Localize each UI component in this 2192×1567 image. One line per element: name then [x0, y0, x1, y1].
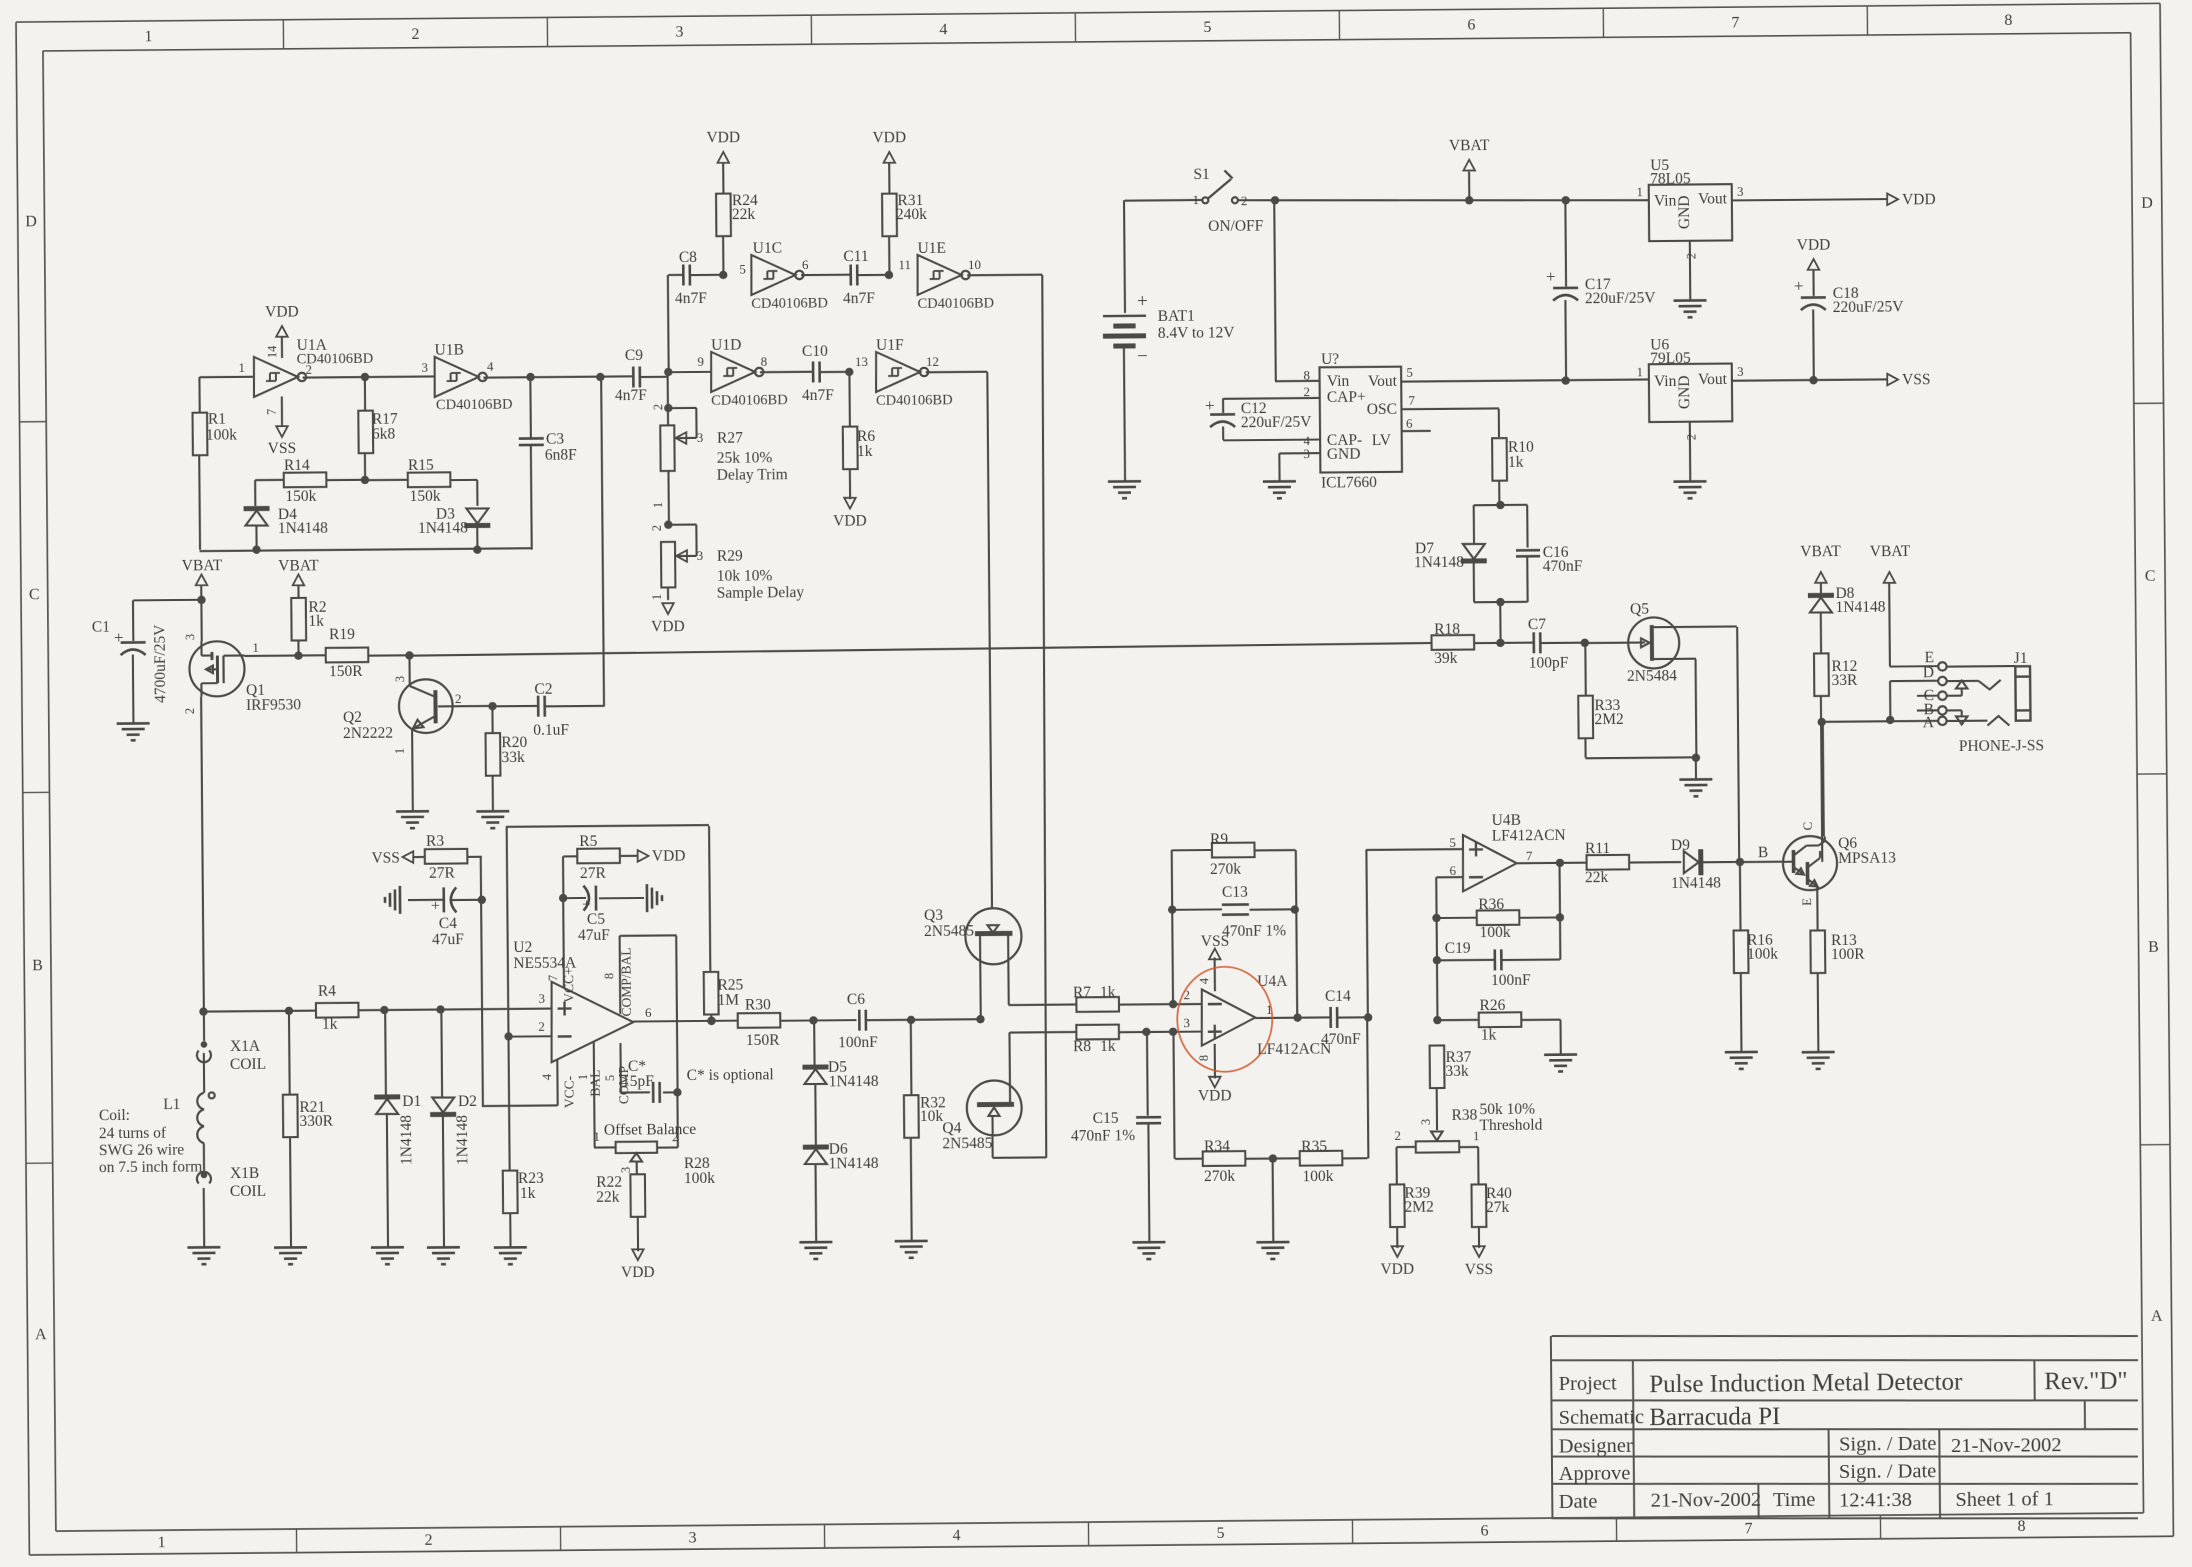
svg-text:U1F: U1F	[876, 337, 904, 354]
svg-text:1N4148: 1N4148	[829, 1073, 879, 1090]
svg-text:240k: 240k	[896, 206, 927, 223]
svg-text:4: 4	[939, 21, 947, 38]
svg-text:Offset Balance: Offset Balance	[604, 1121, 697, 1139]
svg-text:2: 2	[651, 404, 665, 410]
svg-text:J1: J1	[2014, 650, 2028, 667]
svg-text:U1B: U1B	[435, 342, 464, 359]
svg-text:VDD: VDD	[1797, 236, 1831, 253]
svg-text:8: 8	[1197, 1055, 1211, 1061]
svg-text:C5: C5	[587, 911, 605, 928]
svg-text:4700uF/25V: 4700uF/25V	[152, 624, 170, 703]
svg-text:12:41:38: 12:41:38	[1839, 1489, 1912, 1512]
svg-text:3: 3	[688, 1530, 696, 1547]
svg-text:VBAT: VBAT	[278, 557, 319, 574]
svg-text:MPSA13: MPSA13	[1838, 850, 1896, 868]
svg-text:VSS: VSS	[1465, 1261, 1494, 1278]
svg-text:6: 6	[1449, 863, 1456, 878]
svg-text:U1C: U1C	[753, 240, 782, 257]
svg-text:E: E	[1799, 898, 1814, 906]
svg-text:100pF: 100pF	[1529, 654, 1569, 671]
svg-text:+: +	[114, 628, 124, 647]
svg-text:Vin: Vin	[1654, 192, 1677, 209]
svg-text:10k: 10k	[920, 1108, 944, 1125]
svg-text:3: 3	[183, 634, 197, 640]
svg-text:7: 7	[1744, 1520, 1752, 1537]
svg-text:150R: 150R	[746, 1032, 780, 1049]
svg-text:4n7F: 4n7F	[802, 387, 834, 404]
svg-text:470nF 1%: 470nF 1%	[1222, 922, 1286, 940]
svg-text:1k: 1k	[308, 613, 324, 630]
svg-text:Sign. / Date: Sign. / Date	[1839, 1460, 1937, 1483]
svg-text:8: 8	[2017, 1518, 2025, 1535]
svg-text:R30: R30	[745, 996, 771, 1013]
svg-text:7: 7	[1408, 393, 1415, 408]
svg-text:4: 4	[487, 359, 494, 374]
svg-text:Schematic: Schematic	[1559, 1406, 1645, 1429]
svg-text:Threshold: Threshold	[1479, 1116, 1542, 1134]
svg-text:ICL7660: ICL7660	[1321, 474, 1377, 491]
svg-text:LV: LV	[1372, 432, 1392, 449]
svg-text:R5: R5	[579, 833, 597, 850]
svg-text:C15: C15	[1093, 1110, 1119, 1127]
svg-text:VBAT: VBAT	[1870, 543, 1911, 560]
svg-text:33k: 33k	[1445, 1063, 1469, 1080]
svg-text:39k: 39k	[1434, 650, 1458, 667]
svg-text:Barracuda PI: Barracuda PI	[1649, 1403, 1780, 1431]
svg-text:3: 3	[393, 676, 407, 682]
svg-text:GND: GND	[1676, 195, 1693, 229]
svg-text:1k: 1k	[857, 443, 873, 460]
svg-text:R26: R26	[1479, 997, 1505, 1014]
svg-text:IRF9530: IRF9530	[246, 697, 302, 714]
svg-text:Q5: Q5	[1630, 601, 1649, 618]
svg-text:D9: D9	[1671, 837, 1690, 854]
svg-text:1: 1	[393, 748, 407, 754]
svg-text:27k: 27k	[1486, 1199, 1510, 1216]
svg-text:3: 3	[697, 431, 703, 445]
svg-text:470nF 1%: 470nF 1%	[1071, 1127, 1135, 1145]
svg-text:220uF/25V: 220uF/25V	[1241, 413, 1313, 431]
svg-text:Q2: Q2	[343, 709, 362, 726]
svg-text:VDD: VDD	[872, 129, 906, 146]
svg-text:C1: C1	[92, 619, 110, 636]
svg-text:A: A	[2151, 1308, 2163, 1325]
svg-text:27R: 27R	[580, 865, 607, 882]
svg-text:1: 1	[144, 28, 152, 45]
svg-text:BAT1: BAT1	[1158, 308, 1195, 325]
svg-text:79L05: 79L05	[1650, 350, 1691, 367]
svg-text:1: 1	[238, 360, 245, 375]
svg-text:Q3: Q3	[924, 907, 943, 924]
svg-text:Sample Delay: Sample Delay	[717, 584, 805, 602]
svg-text:1N4148: 1N4148	[829, 1155, 879, 1172]
svg-text:6: 6	[802, 257, 809, 272]
svg-text:VCC+: VCC+	[561, 967, 576, 1003]
svg-text:3: 3	[421, 360, 428, 375]
svg-text:1M: 1M	[717, 992, 739, 1009]
svg-text:R1: R1	[208, 411, 226, 428]
svg-text:VBAT: VBAT	[182, 557, 223, 574]
svg-text:Delay Trim: Delay Trim	[717, 466, 788, 484]
svg-text:11: 11	[898, 257, 911, 272]
svg-text:VBAT: VBAT	[1449, 137, 1490, 154]
svg-text:PHONE-J-SS: PHONE-J-SS	[1959, 737, 2044, 755]
svg-text:U1D: U1D	[711, 337, 741, 354]
svg-text:4: 4	[952, 1527, 960, 1544]
svg-text:X1B: X1B	[230, 1165, 259, 1182]
svg-text:1k: 1k	[520, 1185, 536, 1202]
svg-text:VDD: VDD	[651, 618, 685, 635]
svg-text:33R: 33R	[1831, 672, 1858, 689]
svg-text:24 turns of: 24 turns of	[99, 1124, 167, 1142]
svg-text:1: 1	[1192, 192, 1199, 207]
svg-text:2: 2	[1684, 253, 1698, 259]
svg-text:C19: C19	[1445, 940, 1471, 957]
svg-text:270k: 270k	[1204, 1168, 1235, 1185]
svg-text:R34: R34	[1204, 1138, 1230, 1155]
svg-text:R9: R9	[1210, 831, 1228, 848]
svg-text:8: 8	[2004, 12, 2012, 29]
svg-text:CD40106BD: CD40106BD	[751, 295, 828, 312]
svg-text:3: 3	[1737, 184, 1744, 199]
svg-text:50k 10%: 50k 10%	[1479, 1100, 1535, 1117]
svg-text:3: 3	[538, 991, 545, 1006]
svg-text:2: 2	[672, 1129, 679, 1144]
svg-text:5: 5	[1216, 1525, 1224, 1542]
svg-text:1: 1	[252, 640, 259, 655]
svg-text:14: 14	[265, 345, 279, 358]
svg-text:47uF: 47uF	[578, 927, 610, 944]
svg-text:Sheet 1 of 1: Sheet 1 of 1	[1955, 1488, 2054, 1511]
svg-text:1: 1	[158, 1534, 166, 1551]
svg-text:100k: 100k	[1747, 946, 1778, 963]
svg-text:D: D	[2141, 195, 2153, 212]
svg-text:47uF: 47uF	[432, 931, 464, 948]
svg-text:B: B	[1758, 844, 1768, 861]
svg-text:VSS: VSS	[371, 849, 400, 866]
svg-text:D1: D1	[402, 1093, 421, 1110]
svg-text:4: 4	[540, 1073, 554, 1080]
svg-text:VDD: VDD	[1380, 1261, 1414, 1278]
svg-text:27R: 27R	[429, 865, 456, 882]
svg-text:S1: S1	[1193, 166, 1210, 183]
svg-text:D: D	[25, 213, 37, 230]
svg-text:1N4148: 1N4148	[1671, 875, 1721, 892]
svg-text:VDD: VDD	[621, 1264, 655, 1281]
svg-text:LF412ACN: LF412ACN	[1492, 827, 1566, 845]
svg-text:+: +	[1794, 276, 1804, 295]
svg-text:CD40106BD: CD40106BD	[876, 392, 953, 409]
svg-text:R14: R14	[284, 457, 310, 474]
svg-text:CD40106BD: CD40106BD	[711, 392, 788, 409]
svg-text:VDD: VDD	[1198, 1087, 1232, 1104]
svg-text:100nF: 100nF	[838, 1034, 878, 1051]
svg-text:7: 7	[265, 409, 279, 415]
svg-text:1N4148: 1N4148	[398, 1115, 415, 1165]
svg-text:Time: Time	[1773, 1489, 1816, 1511]
svg-text:4n7F: 4n7F	[615, 387, 647, 404]
svg-text:1N4148: 1N4148	[278, 520, 328, 537]
svg-text:Pulse Induction Metal Detector: Pulse Induction Metal Detector	[1649, 1368, 1963, 1398]
svg-text:B: B	[2148, 939, 2159, 956]
svg-text:D2: D2	[458, 1093, 477, 1110]
svg-text:1N4148: 1N4148	[1414, 554, 1464, 571]
svg-text:R8: R8	[1073, 1038, 1091, 1055]
svg-text:2N2222: 2N2222	[343, 725, 393, 742]
svg-text:2M2: 2M2	[1404, 1199, 1433, 1216]
svg-text:7: 7	[1731, 14, 1739, 31]
svg-text:Project: Project	[1559, 1372, 1618, 1395]
svg-text:C8: C8	[679, 249, 697, 266]
svg-text:X1A: X1A	[230, 1038, 261, 1055]
svg-text:Rev."D": Rev."D"	[2044, 1368, 2128, 1396]
svg-text:R36: R36	[1478, 896, 1504, 913]
svg-text:C3: C3	[546, 431, 564, 448]
svg-text:COIL: COIL	[230, 1056, 266, 1073]
svg-text:4: 4	[1197, 977, 1211, 984]
svg-text:on 7.5 inch form: on 7.5 inch form	[99, 1158, 202, 1176]
svg-text:6: 6	[1480, 1523, 1488, 1540]
svg-text:22k: 22k	[1585, 869, 1609, 886]
svg-text:L1: L1	[163, 1096, 180, 1113]
svg-text:6n8F: 6n8F	[545, 447, 577, 464]
svg-text:3: 3	[1419, 1119, 1433, 1125]
svg-text:3: 3	[1737, 364, 1744, 379]
svg-text:−: −	[1137, 346, 1148, 367]
svg-text:+: +	[1546, 267, 1556, 286]
svg-text:25k 10%: 25k 10%	[717, 450, 773, 467]
svg-text:100k: 100k	[684, 1170, 715, 1187]
svg-text:220uF/25V: 220uF/25V	[1585, 289, 1657, 307]
svg-text:ON/OFF: ON/OFF	[1208, 218, 1264, 235]
svg-text:VSS: VSS	[268, 440, 297, 457]
svg-text:2M2: 2M2	[1594, 711, 1623, 728]
svg-text:R7: R7	[1073, 984, 1091, 1001]
svg-text:150k: 150k	[285, 488, 316, 505]
svg-text:21-Nov-2002: 21-Nov-2002	[1951, 1434, 2062, 1457]
svg-text:R27: R27	[717, 430, 743, 447]
svg-text:R18: R18	[1434, 621, 1460, 638]
svg-text:SWG 26 wire: SWG 26 wire	[99, 1141, 185, 1159]
svg-text:5: 5	[739, 261, 746, 276]
svg-text:C: C	[1800, 822, 1815, 831]
svg-text:1: 1	[650, 594, 664, 600]
svg-text:A: A	[1923, 714, 1935, 731]
svg-text:VDD: VDD	[1902, 191, 1936, 208]
svg-text:D: D	[1923, 664, 1934, 681]
svg-text:220uF/25V: 220uF/25V	[1833, 298, 1905, 316]
svg-text:R4: R4	[318, 983, 336, 1000]
svg-text:7: 7	[546, 975, 560, 981]
svg-text:C* is optional: C* is optional	[687, 1066, 774, 1084]
svg-text:R3: R3	[426, 833, 444, 850]
svg-text:Vin: Vin	[1327, 373, 1350, 390]
svg-text:CD40106BD: CD40106BD	[917, 295, 994, 312]
svg-text:1k: 1k	[322, 1016, 338, 1033]
svg-text:100nF: 100nF	[1491, 972, 1531, 989]
svg-text:U1E: U1E	[917, 240, 946, 257]
svg-text:BAL: BAL	[587, 1070, 602, 1097]
svg-text:VBAT: VBAT	[1800, 543, 1841, 560]
svg-text:33k: 33k	[501, 749, 525, 766]
svg-text:R35: R35	[1301, 1138, 1327, 1155]
svg-text:VDD: VDD	[652, 848, 686, 865]
svg-text:C14: C14	[1325, 988, 1351, 1005]
svg-text:13: 13	[855, 354, 868, 369]
svg-text:4n7F: 4n7F	[675, 290, 707, 307]
svg-text:2: 2	[411, 26, 419, 43]
svg-text:2: 2	[650, 525, 664, 531]
svg-text:1k: 1k	[1481, 1026, 1497, 1043]
svg-text:Sign. / Date: Sign. / Date	[1839, 1433, 1937, 1456]
svg-text:9: 9	[697, 354, 704, 369]
svg-text:Date: Date	[1559, 1491, 1598, 1513]
svg-text:Vout: Vout	[1698, 371, 1728, 388]
svg-text:12: 12	[926, 354, 939, 369]
svg-text:22k: 22k	[596, 1189, 620, 1206]
svg-text:2: 2	[305, 362, 312, 377]
svg-text:C: C	[29, 586, 40, 603]
svg-text:150k: 150k	[409, 488, 440, 505]
svg-text:2: 2	[183, 708, 197, 714]
svg-text:5: 5	[1449, 835, 1456, 850]
svg-text:2N5485: 2N5485	[942, 1135, 992, 1152]
svg-text:C11: C11	[843, 248, 868, 265]
svg-text:3: 3	[1183, 1015, 1190, 1030]
svg-text:B: B	[32, 957, 43, 974]
svg-text:COIL: COIL	[230, 1183, 266, 1200]
svg-text:2: 2	[1684, 434, 1698, 440]
svg-text:C: C	[2145, 568, 2156, 585]
svg-text:C10: C10	[802, 343, 828, 360]
svg-text:C4: C4	[439, 915, 457, 932]
svg-text:5: 5	[603, 1075, 617, 1081]
svg-text:2: 2	[1303, 384, 1310, 399]
svg-text:VCC-: VCC-	[561, 1075, 576, 1108]
svg-text:5: 5	[1203, 19, 1211, 36]
svg-text:VSS: VSS	[1902, 371, 1931, 388]
svg-text:COMP/BAL: COMP/BAL	[618, 947, 634, 1016]
svg-text:22k: 22k	[732, 206, 756, 223]
svg-text:78L05: 78L05	[1650, 170, 1691, 187]
svg-text:1: 1	[651, 502, 665, 508]
svg-text:U2: U2	[513, 939, 532, 956]
svg-text:C9: C9	[625, 347, 643, 364]
svg-text:10: 10	[968, 257, 981, 272]
svg-text:U?: U?	[1321, 351, 1339, 368]
svg-text:1N4148: 1N4148	[418, 520, 468, 537]
svg-text:Vout: Vout	[1368, 373, 1398, 390]
svg-text:R19: R19	[329, 626, 355, 643]
svg-text:8.4V to 12V: 8.4V to 12V	[1158, 324, 1236, 342]
svg-text:1: 1	[1473, 1128, 1480, 1143]
svg-text:4n7F: 4n7F	[843, 290, 875, 307]
svg-text:100k: 100k	[206, 427, 237, 444]
svg-text:+: +	[431, 898, 440, 915]
svg-text:1N4148: 1N4148	[454, 1115, 471, 1165]
svg-text:+: +	[1205, 396, 1215, 415]
svg-text:GND: GND	[1676, 375, 1693, 409]
svg-text:Vout: Vout	[1698, 190, 1728, 207]
svg-text:Vin: Vin	[1654, 373, 1677, 390]
svg-text:VDD: VDD	[706, 129, 740, 146]
svg-text:2: 2	[425, 1532, 433, 1549]
svg-text:8: 8	[602, 973, 616, 979]
svg-text:100R: 100R	[1831, 946, 1865, 963]
svg-text:3: 3	[697, 549, 703, 563]
svg-text:VDD: VDD	[265, 303, 299, 320]
svg-text:6k8: 6k8	[372, 426, 396, 443]
svg-text:CAP+: CAP+	[1327, 389, 1366, 406]
svg-text:3: 3	[675, 24, 683, 41]
svg-text:+: +	[1137, 291, 1148, 312]
svg-text:R29: R29	[717, 548, 743, 565]
svg-text:7: 7	[1526, 848, 1533, 863]
svg-text:R15: R15	[408, 457, 434, 474]
svg-text:2: 2	[1394, 1128, 1401, 1143]
svg-text:GND: GND	[1327, 446, 1361, 463]
svg-text:0.1uF: 0.1uF	[533, 722, 569, 739]
svg-text:1k: 1k	[1100, 984, 1116, 1001]
svg-text:OSC: OSC	[1367, 401, 1397, 418]
svg-text:1: 1	[593, 1129, 600, 1144]
svg-text:470nF: 470nF	[1321, 1031, 1361, 1048]
svg-text:100k: 100k	[1479, 924, 1510, 941]
svg-text:15pF: 15pF	[622, 1073, 654, 1090]
svg-text:VDD: VDD	[833, 512, 867, 529]
svg-text:10k 10%: 10k 10%	[717, 568, 773, 585]
svg-text:2N5485: 2N5485	[924, 923, 974, 940]
svg-text:6: 6	[1406, 416, 1413, 431]
svg-text:1N4148: 1N4148	[1835, 599, 1885, 616]
svg-text:6: 6	[1467, 17, 1475, 34]
svg-text:6: 6	[645, 1005, 652, 1020]
svg-text:3: 3	[619, 1167, 633, 1173]
svg-text:330R: 330R	[299, 1113, 333, 1130]
svg-text:5: 5	[1406, 365, 1413, 380]
svg-text:2: 2	[455, 691, 462, 706]
svg-text:100k: 100k	[1302, 1168, 1333, 1185]
svg-text:1k: 1k	[1508, 454, 1524, 471]
svg-text:Approve: Approve	[1559, 1462, 1631, 1485]
svg-text:270k: 270k	[1210, 861, 1241, 878]
svg-text:C6: C6	[847, 991, 865, 1008]
svg-text:2N5484: 2N5484	[1627, 668, 1677, 685]
svg-text:C2: C2	[534, 681, 552, 698]
svg-text:CD40106BD: CD40106BD	[436, 397, 513, 414]
svg-text:A: A	[35, 1326, 47, 1343]
svg-text:21-Nov-2002: 21-Nov-2002	[1651, 1489, 1762, 1512]
svg-text:1k: 1k	[1100, 1038, 1116, 1055]
svg-text:1: 1	[1636, 184, 1643, 199]
svg-text:C13: C13	[1222, 884, 1248, 901]
svg-text:2: 2	[538, 1019, 545, 1034]
svg-text:8: 8	[761, 354, 768, 369]
svg-text:470nF: 470nF	[1543, 558, 1583, 575]
svg-text:C7: C7	[1528, 616, 1546, 633]
svg-text:Coil:: Coil:	[99, 1107, 130, 1124]
svg-text:Designer: Designer	[1559, 1435, 1633, 1458]
svg-text:150R: 150R	[329, 663, 363, 680]
svg-text:R38: R38	[1451, 1107, 1477, 1124]
svg-text:R11: R11	[1585, 840, 1610, 857]
svg-text:1: 1	[1636, 364, 1643, 379]
